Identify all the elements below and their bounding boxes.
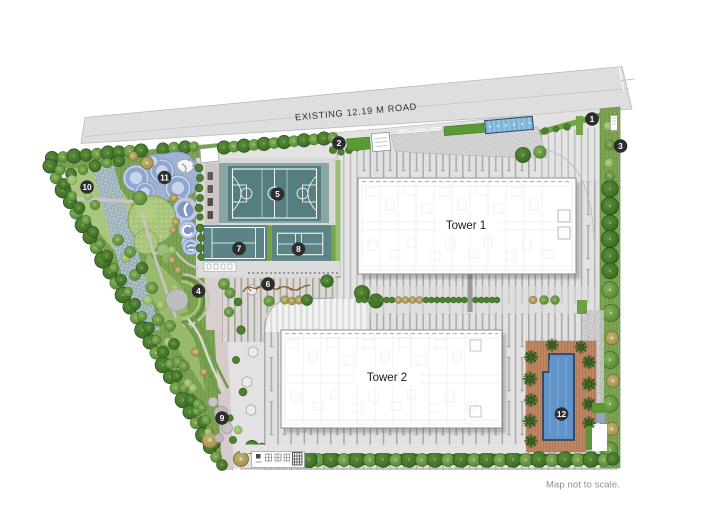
svg-text:12: 12 [557, 409, 567, 419]
svg-text:Map not to scale.: Map not to scale. [546, 480, 620, 491]
svg-text:5: 5 [275, 189, 280, 199]
svg-text:7: 7 [237, 244, 242, 254]
svg-text:3: 3 [618, 141, 623, 151]
svg-text:9: 9 [220, 413, 225, 423]
svg-text:2: 2 [337, 138, 342, 148]
svg-text:11: 11 [160, 173, 169, 183]
svg-text:8: 8 [296, 244, 301, 254]
svg-text:Tower 1: Tower 1 [446, 220, 486, 232]
svg-text:4: 4 [196, 286, 201, 296]
svg-text:1: 1 [590, 114, 595, 124]
svg-text:Tower 2: Tower 2 [367, 372, 407, 384]
svg-text:6: 6 [266, 279, 271, 289]
svg-text:10: 10 [82, 182, 92, 192]
